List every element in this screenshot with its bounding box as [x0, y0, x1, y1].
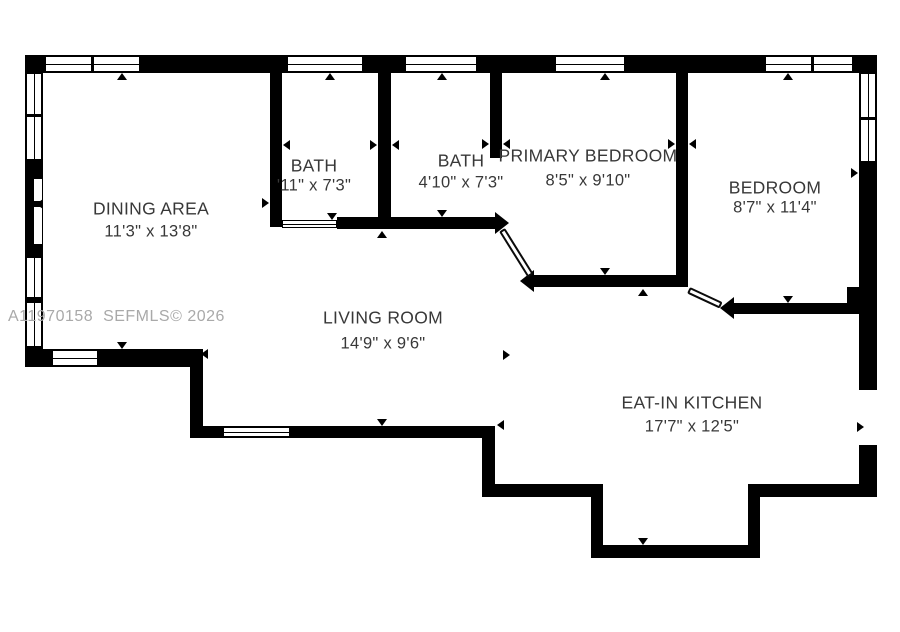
primary-bottom-wall	[534, 275, 688, 287]
room-label-bath-2: BATH	[438, 151, 485, 172]
primary-divider-wall	[676, 73, 688, 287]
opening-arrow	[503, 350, 510, 360]
window-top-2-mullion	[288, 64, 362, 65]
room-label-bath-1: BATH	[291, 156, 338, 177]
opening-arrow	[370, 140, 377, 150]
opening-arrow	[851, 168, 858, 178]
opening-arrow	[377, 419, 387, 426]
opening-arrow	[600, 268, 610, 275]
bedroom-bottom-wall-end	[720, 297, 734, 319]
window-top-4-mullion	[556, 64, 624, 65]
room-dims-living-room: 14'9" x 9'6"	[341, 335, 426, 354]
room-dims-primary-bedroom: 8'5" x 9'10"	[546, 172, 631, 191]
alcove-right-wall	[748, 497, 760, 558]
bath-bottom-wall	[337, 217, 495, 229]
opening-arrow	[117, 342, 127, 349]
room-label-bedroom: BEDROOM	[729, 178, 822, 199]
bedroom-bottom-wall	[734, 303, 877, 314]
opening-arrow	[283, 140, 290, 150]
opening-arrow	[437, 73, 447, 80]
room-dims-dining-area: 11'3" x 13'8"	[104, 223, 197, 242]
mls-watermark: A11970158 SEFMLS© 2026	[8, 308, 225, 326]
opening-arrow	[482, 139, 489, 149]
opening-arrow	[783, 73, 793, 80]
opening-arrow	[689, 139, 696, 149]
opening-arrow	[783, 296, 793, 303]
room-label-dining-area: DINING AREA	[93, 199, 209, 220]
window-top-1	[45, 56, 140, 72]
opening-arrow	[638, 538, 648, 545]
opening-arrow	[117, 73, 127, 80]
opening-arrow	[325, 73, 335, 80]
room-dims-bath-2: 4'10" x 7'3"	[419, 174, 504, 193]
opening-arrow	[857, 422, 864, 432]
window-top-3-mullion	[406, 64, 476, 65]
door-bath1-opening-mullion	[283, 224, 336, 225]
opening-arrow	[327, 213, 337, 220]
room-label-eat-in-kitchen: EAT-IN KITCHEN	[622, 393, 763, 414]
room-dims-bath-1: '11" x 7'3"	[277, 177, 351, 196]
room-dims-eat-in-kitchen: 17'7" x 12'5"	[645, 418, 739, 437]
dining-step-wall	[190, 349, 203, 438]
door-bath1-opening	[282, 220, 337, 228]
bath-divider-wall	[378, 73, 391, 229]
opening-arrow	[201, 349, 208, 359]
window-top-5	[765, 56, 853, 72]
opening-arrow	[392, 140, 399, 150]
window-top-5-mullion	[766, 64, 852, 65]
alcove-bottom-wall	[591, 545, 760, 558]
window-top-5-divider	[811, 57, 814, 71]
left-wall-recess	[33, 178, 43, 245]
door-leaf-hallway	[499, 228, 534, 278]
opening-arrow	[600, 73, 610, 80]
window-right-1	[860, 73, 876, 162]
bedroom-step-block	[847, 287, 877, 304]
bath1-left-wall	[270, 73, 282, 227]
window-dining-bottom-mullion	[53, 358, 97, 359]
window-dining-bottom	[52, 350, 98, 366]
kitchen-bottom-right-wall	[748, 484, 877, 497]
room-dims-bedroom: 8'7" x 11'4"	[733, 199, 817, 218]
window-right-1-divider	[861, 117, 875, 120]
window-living-bottom	[223, 427, 290, 437]
window-left-1	[26, 73, 42, 160]
window-top-2	[287, 56, 363, 72]
window-top-1-divider	[91, 57, 94, 71]
window-living-bottom-mullion	[224, 432, 289, 433]
kitchen-bottom-left-wall	[482, 484, 603, 497]
room-label-primary-bedroom: PRIMARY BEDROOM	[499, 146, 678, 167]
door-leaf-kitchen	[687, 287, 723, 309]
opening-arrow	[262, 198, 269, 208]
room-label-living-room: LIVING ROOM	[323, 308, 443, 329]
window-top-3	[405, 56, 477, 72]
window-left-1-divider	[27, 114, 41, 117]
window-left-2-mullion	[34, 258, 35, 297]
window-left-2	[26, 257, 42, 298]
opening-arrow	[36, 199, 43, 209]
floorplan-canvas: A11970158 SEFMLS© 2026 DINING AREA11'3" …	[0, 0, 900, 632]
opening-arrow	[437, 210, 447, 217]
opening-arrow	[377, 231, 387, 238]
opening-arrow	[638, 289, 648, 296]
opening-arrow	[497, 420, 504, 430]
floorplan-page: A11970158 SEFMLS© 2026 DINING AREA11'3" …	[0, 0, 900, 632]
window-top-4	[555, 56, 625, 72]
